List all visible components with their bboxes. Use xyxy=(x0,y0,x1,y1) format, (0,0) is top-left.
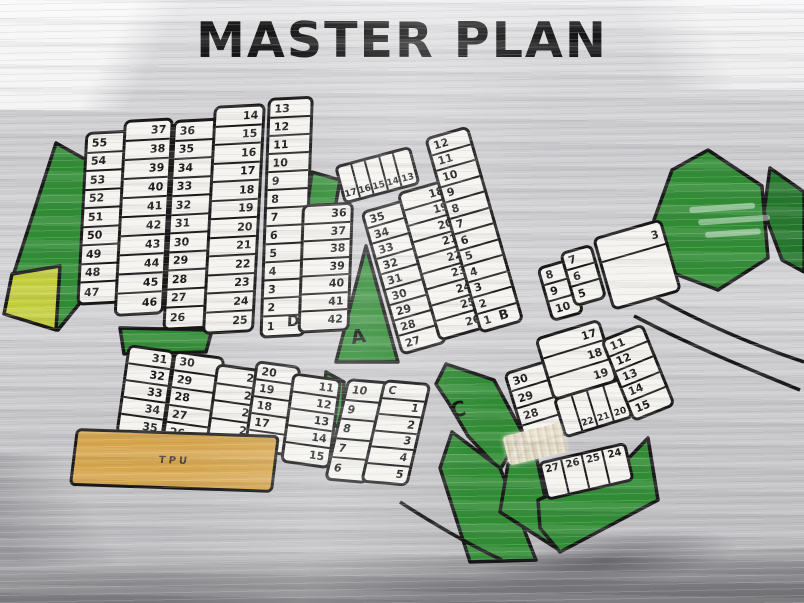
lot-cell: 16 xyxy=(214,144,261,165)
lot-cell: 11 xyxy=(269,135,310,155)
lot-cell: 41 xyxy=(122,197,167,218)
lot-cell: 45 xyxy=(118,273,163,294)
lot-cell: 9 xyxy=(268,171,309,191)
lot-cell: 24 xyxy=(206,292,253,313)
area-label-d: D xyxy=(287,314,300,330)
lot-cell: 25 xyxy=(205,311,252,332)
block-tpu: TPU xyxy=(69,428,280,493)
lot-cell: 13 xyxy=(270,99,311,119)
lot-cell: 17 xyxy=(213,162,260,183)
yellow-area-west xyxy=(4,266,60,330)
lot-cell: 20 xyxy=(210,218,257,239)
lot-cell: 8 xyxy=(267,189,308,209)
lot-cell: 12 xyxy=(269,117,310,137)
page-title: MASTER PLAN xyxy=(196,12,608,69)
lot-cell: 44 xyxy=(119,254,164,275)
lot-cell: 42 xyxy=(121,216,166,237)
green-sliver-right-edge xyxy=(764,168,804,272)
lot-cell: 22 xyxy=(208,255,255,276)
lot-cell: 10 xyxy=(268,153,309,173)
lot-cell: 14 xyxy=(216,106,263,127)
lot-cell: 5 xyxy=(364,464,410,484)
tpu-label: TPU xyxy=(158,454,191,466)
lot-cell: 40 xyxy=(123,178,168,199)
lot-cell: 42 xyxy=(301,310,348,330)
lot-cell: 19 xyxy=(211,199,258,220)
lot-cell: 38 xyxy=(125,140,170,161)
lot-cell: 37 xyxy=(126,121,171,142)
lot-cell: 23 xyxy=(207,274,254,295)
lot-column: 36373839404142 xyxy=(298,202,354,334)
lot-cell: 39 xyxy=(124,159,169,180)
banner-photo: MASTER PLAN A C 555453525150 xyxy=(0,0,804,603)
lot-cell: 15 xyxy=(215,125,262,146)
lot-cell: 46 xyxy=(117,292,162,313)
road-line-east-upper xyxy=(646,292,804,362)
lot-cell: 43 xyxy=(120,235,165,256)
lot-cell: 18 xyxy=(212,181,259,202)
lot-cell: 21 xyxy=(209,236,256,257)
